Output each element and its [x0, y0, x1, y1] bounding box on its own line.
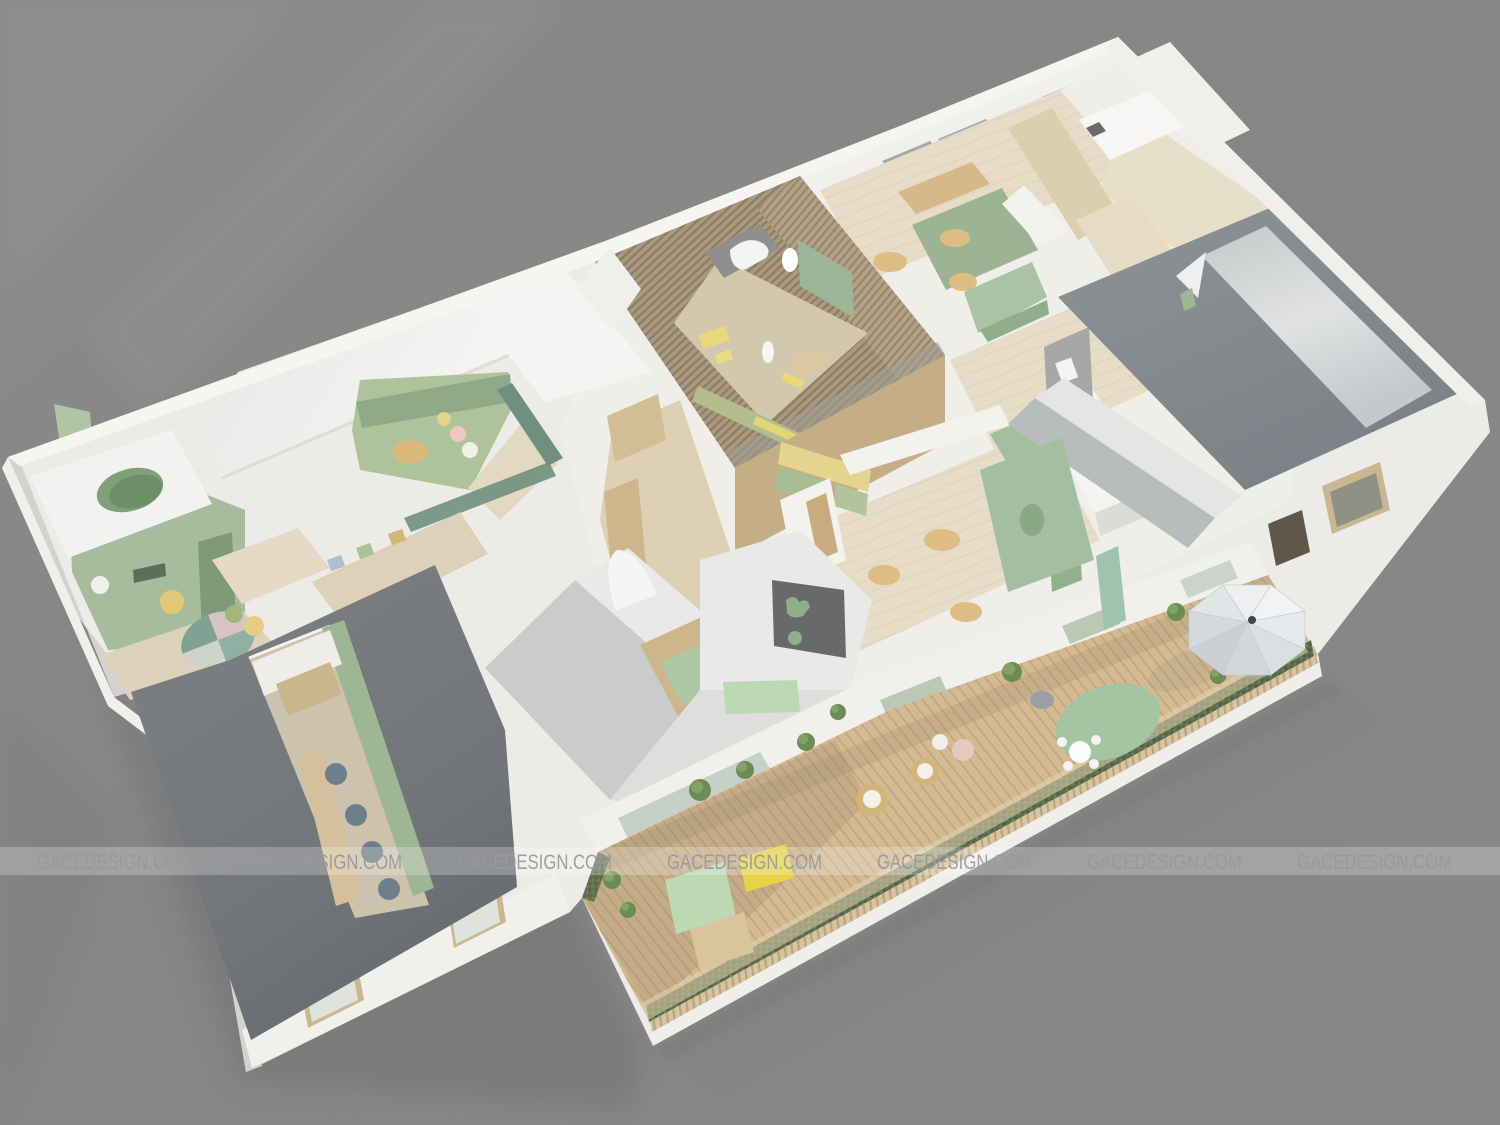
svg-text:GACEDESIGN.COM: GACEDESIGN.COM: [1087, 851, 1242, 874]
svg-text:GACEDESIGN.COM: GACEDESIGN.COM: [667, 851, 822, 874]
svg-text:GACEDESIGN.COM: GACEDESIGN.COM: [457, 851, 612, 874]
svg-text:GACEDESIGN.COM: GACEDESIGN.COM: [1297, 851, 1452, 874]
svg-text:GACEDESIGN.COM: GACEDESIGN.COM: [877, 851, 1032, 874]
svg-text:GACEDESIGN.COM: GACEDESIGN.COM: [37, 851, 192, 874]
svg-text:GACEDESIGN.COM: GACEDESIGN.COM: [247, 851, 402, 874]
